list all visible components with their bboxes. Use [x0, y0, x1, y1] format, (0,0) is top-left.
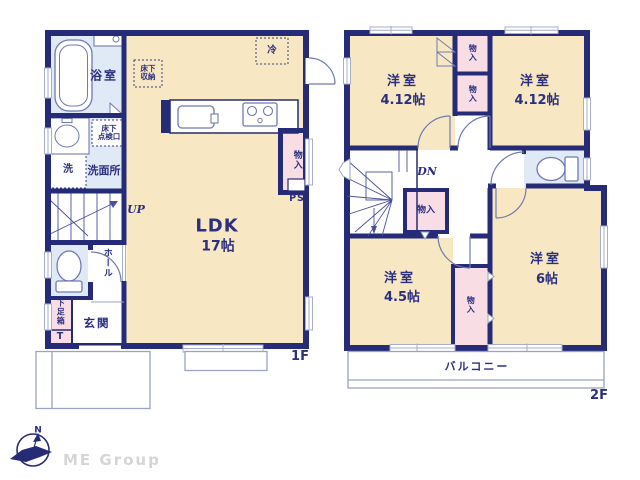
- entrance-porch: [36, 352, 150, 409]
- compass-icon: [10, 433, 52, 466]
- closet-1f-subbox: [288, 179, 305, 191]
- label-inspection-hatch: 床下 点検口: [98, 125, 121, 141]
- washbasin-tap: [62, 119, 72, 123]
- label-shoe-cabinet: 下足箱: [56, 299, 64, 326]
- floorplan-canvas: 浴室 床下 収納 冷 床下 点検口 洗 洗面所 UP ホール 下足箱 T 玄関 …: [0, 0, 640, 480]
- label-washroom: 洗面所: [88, 165, 121, 177]
- label-bedroom-se: 洋室: [530, 253, 562, 267]
- exterior-1f: [36, 352, 267, 409]
- label-shoe-cabinet-t: T: [57, 332, 63, 342]
- sink-icon: [178, 106, 214, 128]
- label-closet-b: 物入: [468, 85, 476, 103]
- label-closet-mid: 物入: [417, 206, 435, 215]
- kitchen-door-gap: [306, 58, 313, 84]
- bathtub-inner: [60, 45, 88, 106]
- label-bedroom-ne-size: 4.12帖: [514, 94, 559, 108]
- label-floor-1f: 1F: [291, 350, 309, 364]
- toilet-door-gap: [88, 250, 93, 282]
- label-line: 収納: [141, 73, 156, 81]
- label-entrance: 玄関: [84, 317, 111, 329]
- room-bedroom-nw: [347, 30, 455, 150]
- room-bedroom-ne: [490, 30, 587, 150]
- label-hall: ホール: [101, 248, 110, 278]
- label-balcony: バルコニー: [445, 361, 510, 373]
- hall-vestibule: [455, 113, 490, 150]
- label-compass-north: N: [34, 426, 42, 435]
- toilet-tank: [56, 281, 82, 292]
- label-bedroom-ne: 洋室: [520, 75, 552, 89]
- label-underfloor-storage: 床下 収納: [141, 65, 156, 81]
- label-pipe-space: PS: [289, 194, 305, 204]
- washbasin-bowl: [55, 125, 79, 147]
- label-floor-2f: 2F: [590, 389, 608, 403]
- label-laundry: 洗: [63, 165, 73, 176]
- label-closet-1f: 物入: [291, 150, 300, 170]
- label-bathroom: 浴室: [90, 70, 118, 83]
- room-stairs-1f: [45, 191, 124, 242]
- label-bedroom-sw: 洋室: [384, 272, 416, 286]
- label-ldk: LDK: [195, 218, 238, 237]
- label-bedroom-se-size: 6帖: [536, 273, 558, 287]
- label-bedroom-nw: 洋室: [387, 75, 419, 89]
- stair-niche: [339, 159, 350, 180]
- label-fridge: 冷: [267, 46, 277, 56]
- sink-tap: [211, 114, 218, 123]
- bath-faucet-icon: [113, 36, 119, 42]
- label-ldk-size: 17帖: [201, 240, 234, 255]
- kitchen-door-arc: [309, 58, 335, 84]
- label-stairs-down: DN: [417, 166, 437, 178]
- label-bedroom-nw-size: 4.12帖: [380, 94, 425, 108]
- label-closet-a: 物入: [468, 44, 476, 62]
- toilet-2f-fixture: [537, 157, 578, 181]
- terrace-step: [185, 352, 267, 371]
- label-line: 点検口: [98, 133, 121, 141]
- toilet-icon: [537, 158, 565, 181]
- brand-logo-text: ME Group: [63, 451, 161, 469]
- toilet-tank: [565, 157, 578, 181]
- toilet-icon: [57, 251, 81, 281]
- kitchen-wall-stub: [161, 100, 170, 133]
- label-closet-s: 物入: [466, 296, 474, 314]
- label-stairs-up: UP: [127, 204, 145, 216]
- label-bedroom-sw-size: 4.5帖: [384, 291, 420, 305]
